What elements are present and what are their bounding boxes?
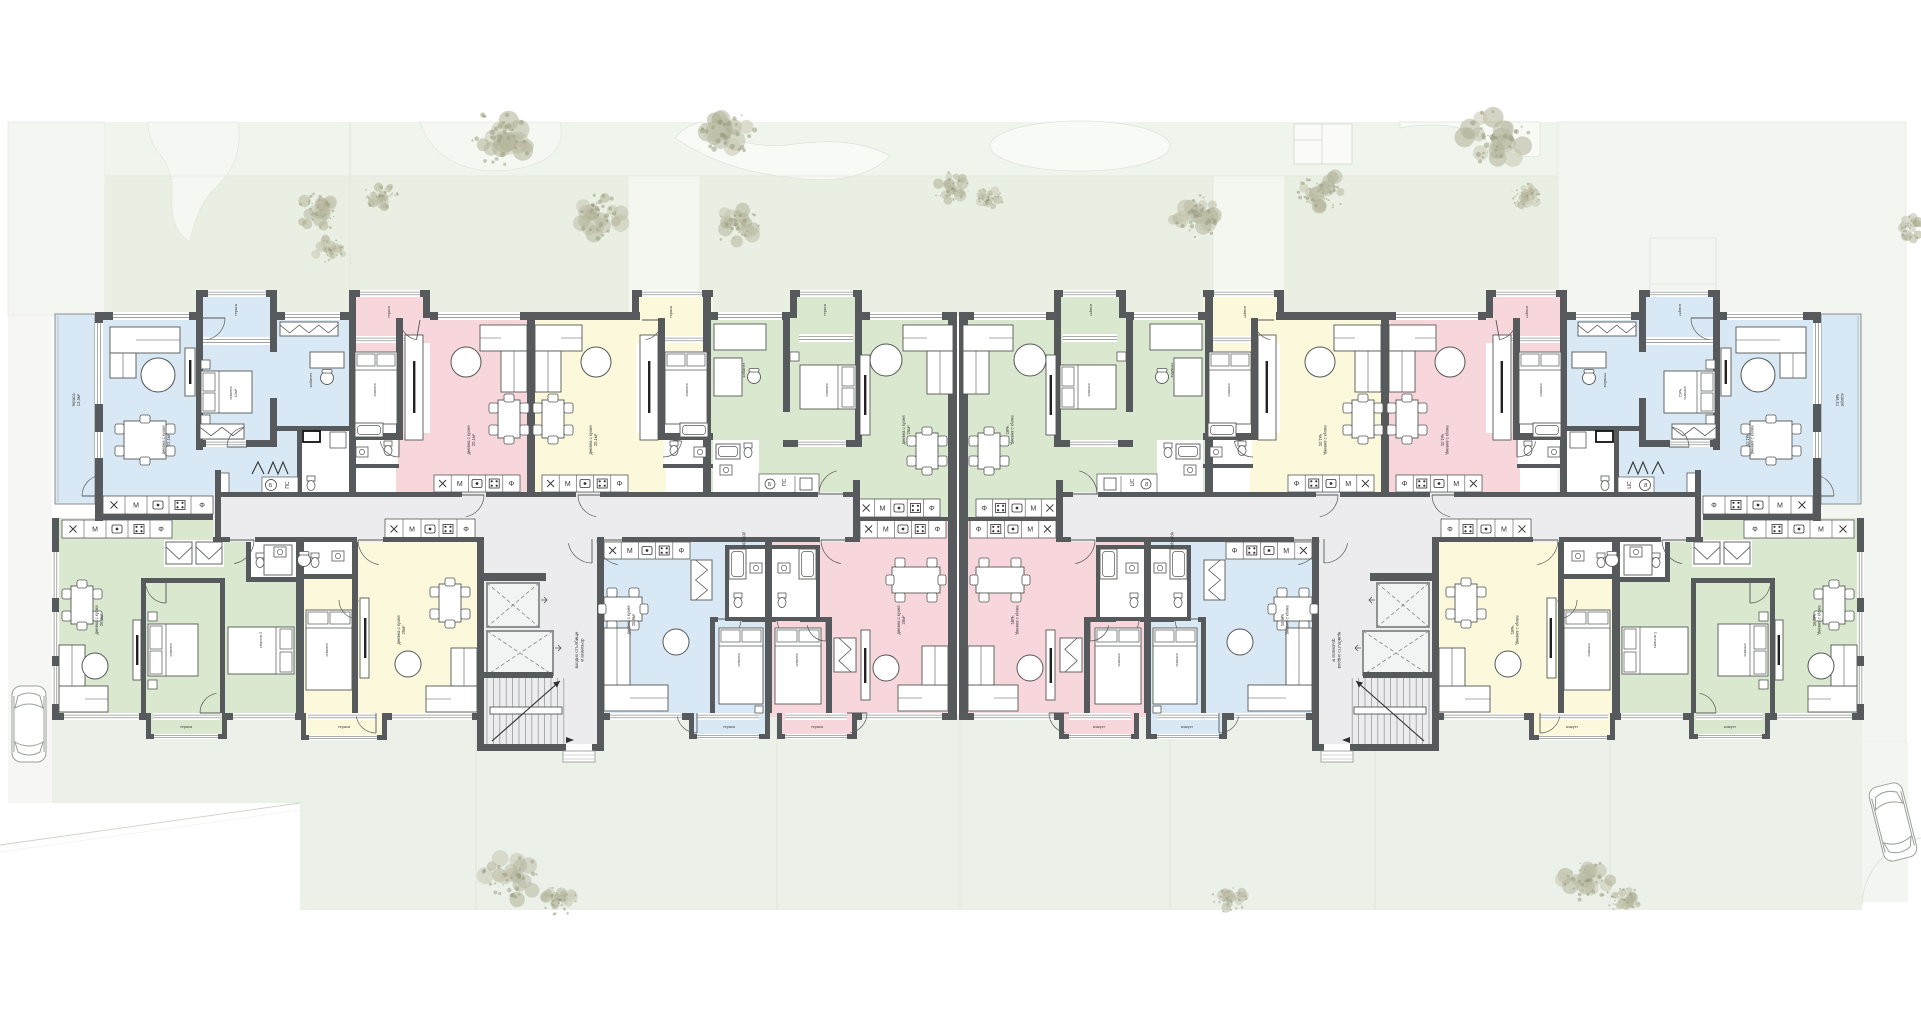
svg-text:Φ: Φ bbox=[929, 506, 935, 513]
svg-text:ПС: ПС bbox=[285, 481, 291, 489]
svg-text:Φ: Φ bbox=[617, 481, 623, 488]
svg-text:коридор: коридор bbox=[741, 531, 746, 548]
svg-text:26,3м²: 26,3м² bbox=[99, 613, 104, 626]
svg-text:спалня: спалня bbox=[684, 383, 689, 396]
svg-text:и асансьор: и асансьор bbox=[580, 638, 585, 662]
svg-text:M: M bbox=[409, 527, 415, 534]
svg-text:кабинет: кабинет bbox=[741, 362, 746, 377]
svg-text:тераса: тераса bbox=[338, 725, 351, 729]
svg-text:спалня 2: спалня 2 bbox=[258, 631, 263, 648]
svg-text:Φ: Φ bbox=[935, 527, 941, 534]
svg-text:26м²: 26м² bbox=[906, 425, 911, 435]
svg-text:кабинет: кабинет bbox=[308, 372, 313, 387]
svg-text:20,1м²: 20,1м² bbox=[593, 433, 598, 446]
svg-text:Φ: Φ bbox=[509, 481, 515, 488]
svg-text:M: M bbox=[133, 503, 139, 510]
svg-text:спалня: спалня bbox=[824, 383, 829, 396]
svg-text:спалня: спалня bbox=[372, 383, 377, 396]
svg-text:20,1м²: 20,1м² bbox=[471, 433, 476, 446]
svg-text:тераса: тераса bbox=[811, 725, 824, 729]
svg-text:спалня: спалня bbox=[794, 653, 799, 666]
svg-text:спалня: спалня bbox=[324, 643, 329, 656]
svg-text:Φ: Φ bbox=[199, 503, 205, 510]
svg-text:Φ: Φ bbox=[679, 548, 685, 555]
svg-text:12м²: 12м² bbox=[233, 388, 238, 397]
svg-text:входно стълбище: входно стълбище bbox=[574, 631, 579, 668]
svg-text:тераса: тераса bbox=[234, 303, 238, 316]
svg-text:M: M bbox=[883, 527, 889, 534]
svg-text:M: M bbox=[92, 527, 98, 534]
svg-text:22,1м²: 22,1м² bbox=[166, 433, 171, 446]
svg-text:M: M bbox=[457, 481, 463, 488]
svg-text:25м²: 25м² bbox=[401, 625, 406, 635]
svg-text:тераса: тераса bbox=[669, 305, 673, 318]
svg-text:13,5м²: 13,5м² bbox=[76, 393, 81, 406]
svg-text:тераса: тераса bbox=[180, 725, 193, 729]
svg-text:тераса: тераса bbox=[387, 305, 391, 318]
svg-text:спалня: спалня bbox=[168, 643, 173, 656]
svg-text:тераса: тераса bbox=[823, 303, 827, 316]
svg-text:спалня: спалня bbox=[736, 653, 741, 666]
svg-text:Φ: Φ bbox=[463, 527, 469, 534]
svg-text:25,9м²: 25,9м² bbox=[631, 613, 636, 626]
svg-text:Φ: Φ bbox=[158, 527, 164, 534]
svg-text:тераса: тераса bbox=[723, 725, 736, 729]
svg-text:M: M bbox=[565, 481, 571, 488]
svg-text:28м²: 28м² bbox=[901, 615, 906, 625]
svg-text:ПС: ПС bbox=[782, 478, 788, 486]
svg-text:M: M bbox=[880, 506, 886, 513]
svg-text:M: M bbox=[627, 548, 633, 555]
